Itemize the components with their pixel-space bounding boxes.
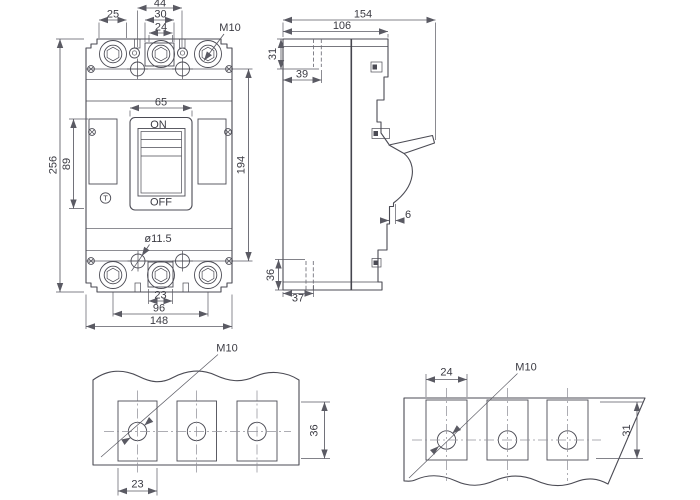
dim-36-detail-label: 36 bbox=[309, 424, 321, 436]
dim-36-side: 36 bbox=[265, 260, 305, 291]
m10-label-br: M10 bbox=[515, 362, 536, 374]
operating-handle bbox=[389, 136, 435, 154]
thread-callout-bottom-left: M10 bbox=[101, 343, 238, 458]
off-label: OFF bbox=[150, 197, 172, 209]
dim-25-label: 25 bbox=[107, 9, 119, 21]
hidden-hole-lines bbox=[306, 39, 321, 290]
on-label: ON bbox=[150, 119, 167, 131]
dim-36-side-label: 36 bbox=[265, 269, 277, 281]
dim-31-detail-label: 31 bbox=[621, 424, 633, 436]
dim-24-detail-label: 24 bbox=[440, 367, 452, 379]
trip-label: T bbox=[103, 194, 108, 203]
dim-31-side-label: 31 bbox=[267, 48, 279, 60]
dim-96-label: 96 bbox=[153, 303, 165, 315]
dim-106: 106 bbox=[283, 20, 388, 38]
line-terminals bbox=[100, 41, 222, 68]
front-view: ON OFF T 44 25 30 24 M10 bbox=[48, 0, 253, 329]
hole-dia-label: ø11.5 bbox=[144, 233, 171, 245]
dim-37-label: 37 bbox=[292, 293, 304, 305]
dim-154-label: 154 bbox=[354, 9, 372, 21]
dim-23-detail-label: 23 bbox=[131, 479, 143, 491]
side-view: 154 106 31 39 6 36 bbox=[265, 9, 436, 305]
thread-callout-bottom-right: M10 bbox=[409, 362, 537, 479]
dim-25: 25 bbox=[99, 9, 127, 39]
dim-39-label: 39 bbox=[296, 69, 308, 81]
detail-view-bottom-terminals: M10 23 36 bbox=[93, 343, 330, 496]
technical-drawing-page: ON OFF T 44 25 30 24 M10 bbox=[0, 0, 700, 500]
dim-106-label: 106 bbox=[333, 20, 351, 32]
dim-31-side: 31 bbox=[267, 39, 319, 69]
dim-31-detail: 31 bbox=[596, 402, 643, 459]
busbar-plate-left bbox=[93, 371, 299, 465]
dim-24-label: 24 bbox=[155, 22, 167, 34]
dim-194: 194 bbox=[236, 69, 249, 261]
terminal-slots-left bbox=[118, 401, 277, 461]
dim-37: 37 bbox=[283, 285, 314, 305]
m10-label-bl: M10 bbox=[216, 343, 237, 355]
m10-label-front: M10 bbox=[219, 22, 240, 34]
dim-89-label: 89 bbox=[61, 158, 73, 170]
dim-30-label: 30 bbox=[154, 9, 166, 21]
detail-view-top-terminals: 24 M10 31 bbox=[404, 362, 645, 486]
dim-256-label: 256 bbox=[48, 156, 60, 174]
dim-39: 39 bbox=[283, 69, 322, 84]
dim-6-label: 6 bbox=[405, 209, 411, 221]
busbar-plate-right bbox=[404, 398, 645, 486]
dim-194-label: 194 bbox=[236, 156, 248, 174]
thread-callout-front: M10 bbox=[204, 22, 241, 61]
dim-65: 65 bbox=[130, 97, 192, 117]
load-terminals bbox=[100, 262, 222, 289]
toggle-handle bbox=[138, 129, 185, 197]
dim-65-label: 65 bbox=[155, 97, 167, 109]
dim-23-front-label: 23 bbox=[154, 290, 166, 302]
centerlines-right bbox=[412, 388, 601, 481]
dim-89: 89 bbox=[61, 119, 88, 209]
breaker-dimension-drawing: ON OFF T 44 25 30 24 M10 bbox=[0, 0, 700, 500]
dim-36-detail: 36 bbox=[301, 402, 330, 459]
dim-148-label: 148 bbox=[150, 315, 168, 327]
terminal-slots-right bbox=[426, 400, 588, 460]
side-seam-lines bbox=[283, 47, 388, 283]
dim-6: 6 bbox=[380, 204, 411, 224]
trip-button: T bbox=[100, 193, 110, 203]
breaker-body-outline bbox=[86, 39, 232, 292]
terminal-screws bbox=[130, 48, 188, 58]
